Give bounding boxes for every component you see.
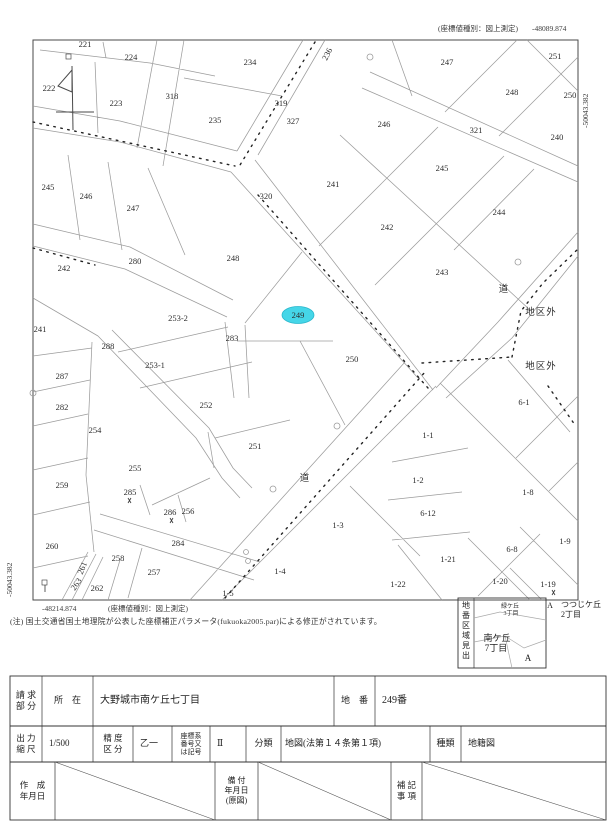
parcel-label-283: 283 — [226, 333, 239, 343]
control-point-icon — [334, 423, 340, 429]
parcel-label-251: 251 — [549, 51, 562, 61]
parcel-label-261: 261 — [75, 560, 89, 576]
parcel-label-1-9: 1-9 — [559, 536, 570, 546]
parcel-label-320: 320 — [260, 191, 273, 201]
value-output-scale: 1/500 — [42, 726, 93, 762]
area-label-地区外: 地区外 — [525, 306, 557, 318]
parcel-label-250: 250 — [564, 90, 577, 100]
parcel-label-245: 245 — [436, 163, 449, 173]
parcel-label-242: 242 — [58, 263, 71, 273]
parcel-label-250: 250 — [346, 354, 359, 364]
coord-top-right-x: -48089.874 — [532, 24, 567, 33]
parcel-label-235: 235 — [209, 115, 222, 125]
parcel-label-282: 282 — [56, 402, 69, 412]
parcel-label-280: 280 — [129, 256, 142, 266]
parcel-label-234: 234 — [244, 57, 258, 67]
index-current-area-line2: 7丁目 — [485, 643, 508, 653]
index-box-title-char: 出 — [462, 650, 470, 660]
parcel-label-259: 259 — [56, 480, 69, 490]
label-coordinate-system: 座標系 番号又 は記号 — [172, 726, 210, 762]
parcel-label-241: 241 — [34, 324, 47, 334]
parcel-label-249: 249 — [292, 310, 305, 320]
parcel-label-257: 257 — [148, 567, 161, 577]
parcel-label-247: 247 — [441, 57, 454, 67]
parcel-label-240: 240 — [551, 132, 564, 142]
parcel-label-321: 321 — [470, 125, 483, 135]
parcel-label-262: 262 — [91, 583, 104, 593]
empty-cell-diagonals — [55, 762, 606, 820]
parcel-label-221: 221 — [79, 39, 92, 49]
value-map-type: 地籍図 — [461, 726, 606, 762]
parcel-label-248: 248 — [506, 87, 519, 97]
parcel-label-254: 254 — [89, 425, 103, 435]
parcel-label-252: 252 — [200, 400, 213, 410]
control-point-icon — [515, 259, 521, 265]
area-label-道: 道 — [499, 283, 510, 295]
parcel-label-248: 248 — [227, 253, 240, 263]
parcel-label-1-3: 1-3 — [332, 520, 343, 530]
parcel-label-1-8: 1-8 — [522, 487, 533, 497]
parcel-label-318: 318 — [166, 91, 179, 101]
parcel-label-255: 255 — [129, 463, 142, 473]
correction-note: (注) 国土交通省国土地理院が公表した座標補正パラメータ(fukuoka2005… — [10, 616, 610, 627]
area-label-地区外: 地区外 — [525, 360, 557, 372]
coord-left-edge-y: -50043.382 — [5, 562, 14, 597]
index-current-area-line1: 南ケ丘 — [483, 632, 510, 643]
cadastral-map-page: 2212242222233182342353193272362472512482… — [0, 0, 616, 826]
coord-bottom-left-x: -48214.874 — [42, 604, 77, 613]
value-location: 大野城市南ケ丘七丁目 — [93, 676, 334, 726]
index-box-title-char: 地 — [462, 600, 470, 610]
parcel-label-246: 246 — [378, 119, 391, 129]
parcel-label-1-2: 1-2 — [412, 475, 423, 485]
parcel-label-245: 245 — [42, 182, 55, 192]
index-marker-inside: A — [525, 653, 532, 663]
parcel-label-258: 258 — [112, 553, 125, 563]
parcel-label-327: 327 — [287, 116, 300, 126]
parcel-label-6-1: 6-1 — [518, 397, 529, 407]
label-map-type: 種類 — [430, 726, 461, 762]
control-point-icons — [30, 54, 521, 564]
index-marker-outside: A — [547, 601, 553, 610]
control-point-icon — [244, 550, 249, 555]
parcel-label-1-20: 1-20 — [492, 576, 508, 586]
label-precision-class: 精 度 区 分 — [93, 726, 133, 762]
parcel-label-6-8: 6-8 — [506, 544, 517, 554]
coord-right-edge-y: -50043.382 — [581, 93, 590, 128]
value-coordinate-system: Ⅱ — [210, 726, 246, 762]
parcel-label-243: 243 — [436, 267, 449, 277]
value-classification: 地図(法第１４条第１項) — [281, 726, 430, 762]
label-classification: 分類 — [246, 726, 281, 762]
coord-type-label-bottom: (座標値種別：図上測定) — [108, 603, 188, 613]
label-creation-date: 作 成 年月日 — [10, 762, 55, 820]
parcel-label-224: 224 — [125, 52, 139, 62]
control-point-icon — [270, 486, 276, 492]
parcel-label-263: 263 — [68, 576, 84, 592]
index-box-title: 地番区域見出 — [462, 600, 470, 660]
parcel-label-260: 260 — [46, 541, 59, 551]
parcel-label-1-1: 1-1 — [422, 430, 433, 440]
parcel-label-288: 288 — [102, 341, 115, 351]
parcel-label-1-21: 1-21 — [440, 554, 456, 564]
parcel-area-index-box: 地番区域見出 緑ケ丘 3丁目 南ケ丘 7丁目 A A つつじケ丘 2丁目 — [458, 598, 601, 668]
parcel-label-222: 222 — [43, 83, 56, 93]
parcel-label-1-4: 1-4 — [274, 566, 286, 576]
parcel-label-286: 286 — [164, 507, 177, 517]
label-request-part: 請 求 部 分 — [10, 676, 42, 726]
parcel-label-284: 284 — [172, 538, 186, 548]
survey-flag-icon — [56, 54, 94, 130]
label-supplementary-notes: 補 記 事 項 — [391, 762, 422, 820]
coord-type-label-top: (座標値種別：図上測定) — [438, 23, 518, 33]
parcel-label-1-5: 1-5 — [222, 588, 233, 598]
parcel-label-251: 251 — [249, 441, 262, 451]
label-location: 所 在 — [42, 676, 93, 726]
parcel-label-319: 319 — [275, 98, 288, 108]
index-box-title-char: 域 — [462, 630, 470, 640]
label-filing-date: 備 付 年月日 (原図) — [215, 762, 258, 820]
parcel-label-246: 246 — [80, 191, 93, 201]
label-parcel-number: 地 番 — [334, 676, 375, 726]
parcel-label-241: 241 — [327, 179, 340, 189]
index-adjacent-right-line1: つつじケ丘 — [561, 600, 601, 609]
survey-mark-icons — [42, 498, 555, 595]
parcel-label-247: 247 — [127, 203, 140, 213]
index-adjacent-top-line1: 緑ケ丘 — [501, 602, 519, 610]
parcel-label-285: 285 — [124, 487, 137, 497]
parcel-label-256: 256 — [182, 506, 195, 516]
parcel-label-253-2: 253-2 — [168, 313, 188, 323]
parcel-label-244: 244 — [493, 207, 507, 217]
control-point-icon — [246, 559, 251, 564]
control-point-icon — [367, 54, 373, 60]
area-label-道: 道 — [300, 472, 311, 484]
parcel-label-6-12: 6-12 — [420, 508, 436, 518]
parcel-label-253-1: 253-1 — [145, 360, 165, 370]
parcel-label-287: 287 — [56, 371, 69, 381]
value-precision-class: 乙一 — [133, 726, 172, 762]
value-parcel-number: 249番 — [375, 676, 606, 726]
parcel-label-223: 223 — [110, 98, 123, 108]
index-box-title-char: 見 — [462, 641, 470, 650]
parcel-label-1-19: 1-19 — [540, 579, 556, 589]
parcel-label-236: 236 — [320, 46, 335, 62]
label-output-scale: 出 力 縮 尺 — [10, 726, 42, 762]
parcel-label-1-22: 1-22 — [390, 579, 406, 589]
parcel-label-242: 242 — [381, 222, 394, 232]
